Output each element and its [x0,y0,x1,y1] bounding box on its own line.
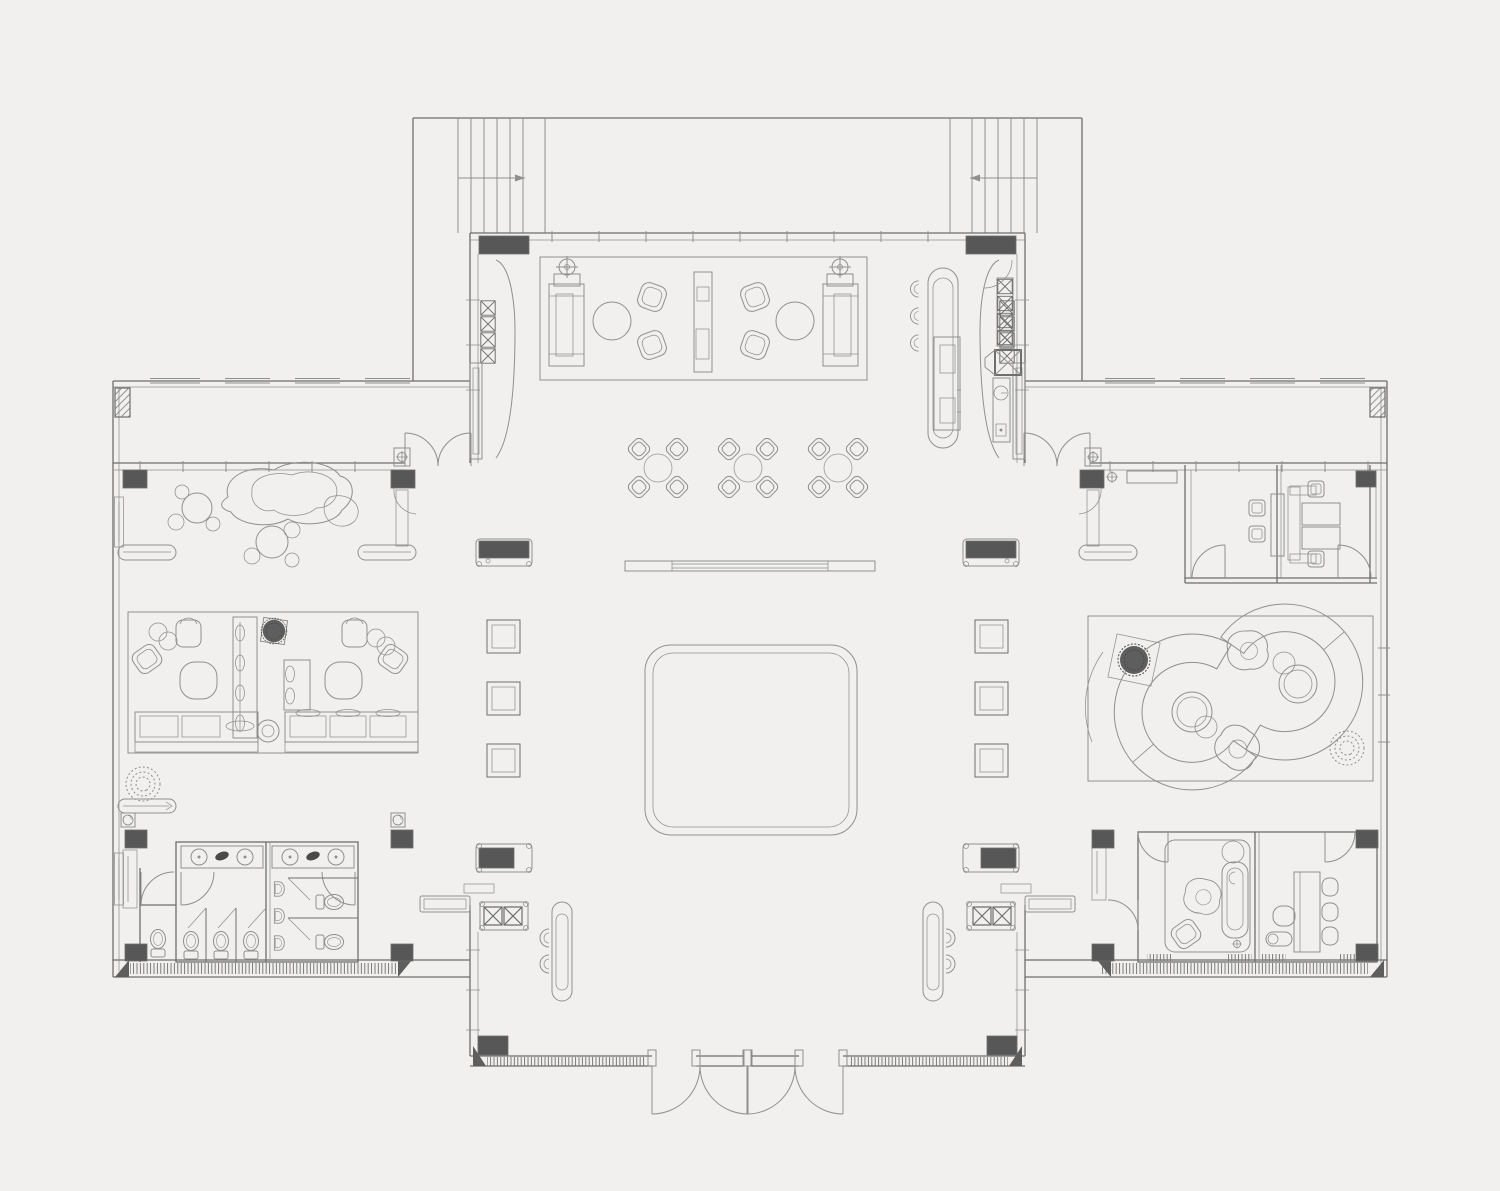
square-column [487,744,520,777]
window-strip [396,490,408,546]
door-mat-left-wing [130,963,398,974]
corner-column [479,236,529,254]
sofa [549,284,584,366]
meeting-room-door [1338,545,1371,578]
long-console-table [625,561,875,571]
toilet [151,930,166,958]
spa-room [1165,840,1250,952]
wing-outer-walls [113,379,1390,978]
work-chair [1322,878,1338,896]
column [391,944,413,961]
round-table [180,662,217,699]
entrance-door-leaf [700,1066,748,1114]
colonnade-pier-bottom [476,844,532,873]
l-sofa-left [135,712,258,752]
lounge-half-mirrored [738,256,858,366]
restroom-door [181,872,214,905]
vent-strip [1262,954,1286,961]
column [391,470,415,488]
massage-bed [1222,862,1248,938]
trolley [1266,932,1292,946]
bench-seat [358,545,416,560]
stone-seat-cluster [168,485,220,531]
entrance-planter [540,902,572,1001]
round-stool [257,720,279,742]
desk-chair [1249,526,1265,542]
entrance-mat [487,1057,645,1066]
survey-mark [1106,471,1118,483]
exhaust-fan [121,813,135,827]
work-chair [1273,906,1295,926]
sculpture-display [222,462,359,526]
round-table [325,662,362,699]
tall-cabinet [470,363,482,459]
wc-door [141,872,174,905]
bar-back-counter [934,337,960,430]
stool [1222,841,1244,863]
armchair [635,280,668,313]
work-table [1294,872,1320,952]
toilet-stalls [184,908,267,962]
screen-unit [284,660,310,710]
armchair [375,642,410,677]
floor-plan-page [0,0,1500,1191]
curved-wall-corner [394,488,416,514]
work-chair [1322,903,1338,921]
column [391,830,413,848]
curved-lounge-room [1085,582,1384,812]
door-mat-right-wing [1100,963,1368,974]
barrel-chair [176,618,201,647]
column [1080,470,1104,488]
round-coffee-table [1279,665,1317,703]
work-chair [1322,927,1338,945]
window-strip [1087,490,1099,546]
meeting-table [1302,503,1340,549]
chair [1168,917,1203,952]
stair-flight-left [458,118,545,233]
column [1092,830,1114,848]
floor-lamp [556,256,578,278]
column [125,830,147,848]
urinal [274,909,284,923]
plant [1330,731,1364,765]
corner-bench [420,884,494,912]
column [123,470,147,488]
bar-stool [911,308,919,324]
spa-and-work-rooms [1138,832,1377,962]
right-wing [1024,433,1387,962]
lounge-rug [540,257,867,380]
plant [1118,644,1150,676]
vestibule-pier [480,902,529,931]
dining-set [716,436,779,499]
bar-cabinet [993,378,1010,442]
bar-stool [911,335,919,351]
vestibule-double-door-right [1024,433,1101,466]
column [1356,944,1378,961]
dining-set [806,436,869,499]
stair-flight-right [950,118,1037,233]
wall-niche [123,850,137,908]
window-ticks-right-wall [1378,648,1390,742]
planter-box [260,617,287,644]
corridor-door [1108,900,1138,930]
armchair [635,328,668,361]
left-wing [113,433,471,962]
armchair [129,642,164,677]
urinal [274,882,284,896]
hatched-column-left [115,388,130,417]
wall-niche [1092,845,1106,900]
bench-seat [118,545,176,560]
vanity-counter [272,846,354,868]
square-column [487,682,520,715]
column [1356,830,1378,848]
desk-chair [1249,500,1265,516]
bar-counter [928,268,958,448]
hall-side-mirrored [743,233,1075,1114]
accessible-stalls [288,878,358,950]
round-coffee-table [593,302,631,340]
stone-seat-cluster [244,522,300,567]
meeting-room-door [1192,545,1225,578]
vent-strip [1228,954,1252,961]
column [125,944,147,961]
floor-plant [126,767,160,801]
column [1092,944,1114,961]
spa-rug [1180,875,1224,918]
exhaust-fan [391,813,405,827]
l-sofa-right [285,710,418,753]
curved-wall-panel [496,260,515,458]
side-table [149,623,167,641]
vanity-counter [181,846,263,868]
bench-seat [1079,545,1137,560]
crescent-sofa [1092,618,1275,812]
blob-chair [1208,718,1268,777]
banquette-screen [233,617,257,738]
central-hall [420,231,1075,1114]
side-table [1195,716,1217,738]
restroom-block [140,842,358,962]
work-room [1266,872,1338,952]
side-table [159,632,177,650]
floor-plan-drawing [0,0,1500,1191]
hatched-column-right [1370,388,1385,417]
restroom-door [322,872,355,905]
vestibule-double-door-left [394,433,471,466]
column [1356,471,1376,487]
square-column [487,620,520,653]
central-carpet [645,645,857,835]
curved-wall-corner [1079,488,1101,514]
urinal [274,936,284,950]
side-board [1288,487,1300,560]
entrance-door-leaf [652,1066,700,1114]
wall-console [1127,471,1177,483]
round-coffee-table [1172,692,1212,732]
spa-door [1138,832,1168,862]
corner-block [478,1036,508,1055]
vent-strip [1147,954,1171,961]
meeting-rooms [1185,465,1377,583]
colonnade-pier-top [476,539,532,567]
lounge-room [128,612,418,753]
bar-stool [911,281,919,297]
bench-seat [118,799,176,813]
dining-set [626,436,689,499]
center-console [694,272,712,372]
barrel-chair [342,618,367,647]
work-room-door [1325,832,1355,862]
